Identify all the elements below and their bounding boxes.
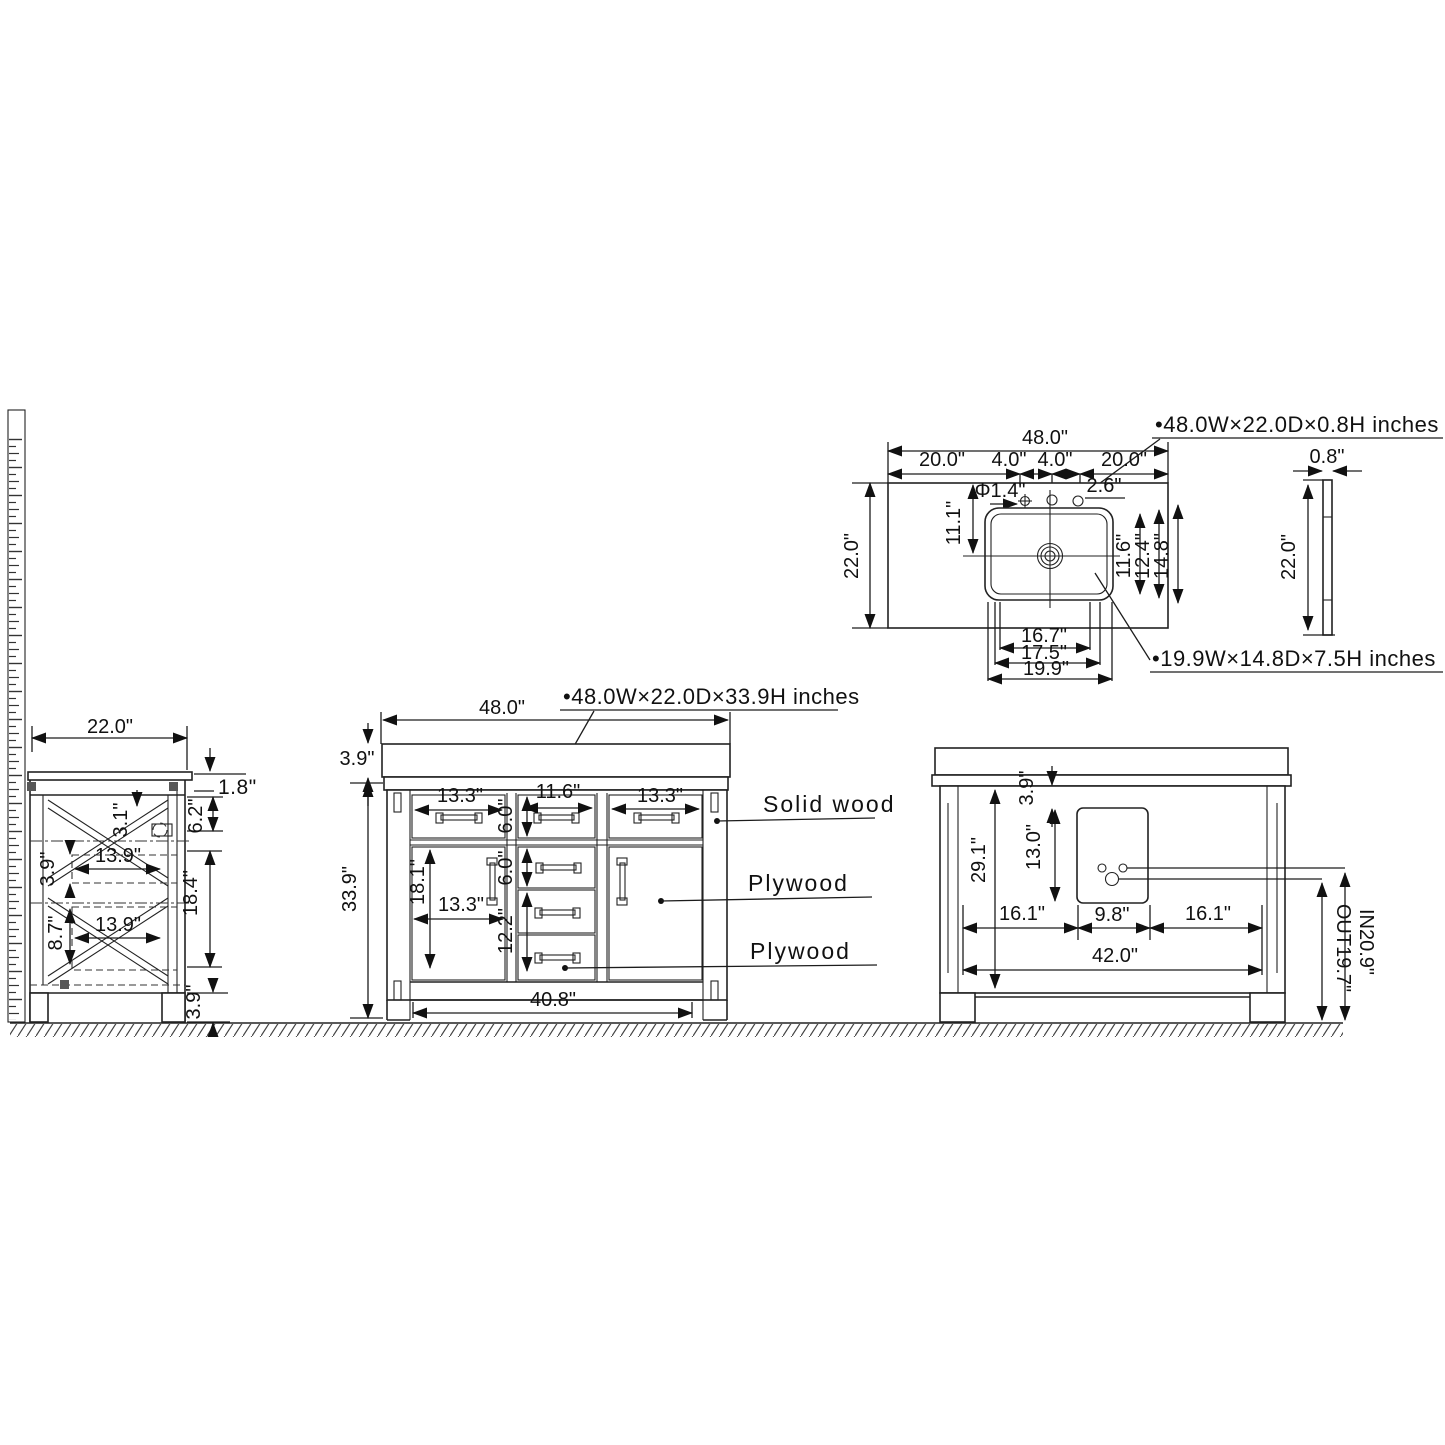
dim-top-seg-left: 20.0" xyxy=(919,449,965,471)
dim-drawer-depth: 6.0" xyxy=(495,799,517,834)
front-size-label: •48.0W×22.0D×33.9H inches xyxy=(563,684,860,709)
side-leg-front xyxy=(30,993,48,1022)
material-door-label: Plywood xyxy=(748,870,849,896)
dim-side-counter-thickness: 1.8" xyxy=(218,776,257,799)
dim-sink-d3: 14.8" xyxy=(1151,533,1173,579)
dim-hole-offset: 11.1" xyxy=(943,501,965,546)
dim-side-width: 22.0" xyxy=(87,716,133,738)
plumbing-cutout xyxy=(1077,808,1148,903)
dim-back-seg-right: 16.1" xyxy=(1185,903,1231,925)
dim-drawer-center: 11.6" xyxy=(536,781,581,803)
stack-drawer-3 xyxy=(518,935,595,980)
door-right xyxy=(609,847,702,980)
dim-side-box-h-top: 3.9" xyxy=(37,852,59,887)
back-view: 29.1" 3.9" 13.0" 16.1" 9.8" 16.1" 42.0" … xyxy=(932,748,1377,1022)
back-leg-right xyxy=(1250,993,1285,1022)
dim-side-opening: 18.4" xyxy=(180,870,202,916)
dim-base-w: 40.8" xyxy=(530,989,576,1011)
dim-stack-lower: 12.2" xyxy=(495,908,517,954)
dim-hole-spacing: 2.6" xyxy=(1087,475,1122,497)
dim-drawer-right: 13.3" xyxy=(637,785,683,807)
countertop-edge xyxy=(1323,480,1332,635)
measuring-ruler xyxy=(8,410,25,1022)
ground xyxy=(10,1023,1343,1037)
material-frame-label: Solid wood xyxy=(763,791,896,817)
back-countertop xyxy=(935,748,1288,775)
drawing-canvas: 22.0" 1.8" 3.1" 6.2" 3.9" 13.9" 18.4" 8.… xyxy=(0,0,1445,1445)
dim-side-box-w-bottom: 13.9" xyxy=(95,914,141,936)
dim-sink-w3: 19.9" xyxy=(1023,658,1069,680)
dim-front-height: 33.9" xyxy=(339,866,361,912)
x-brace-upper xyxy=(48,800,168,886)
vanity-dimension-drawing: 22.0" 1.8" 3.1" 6.2" 3.9" 13.9" 18.4" 8.… xyxy=(0,0,1445,1445)
side-view: 22.0" 1.8" 3.1" 6.2" 3.9" 13.9" 18.4" 8.… xyxy=(27,716,257,1034)
dim-top-seg-c1: 4.0" xyxy=(992,449,1027,471)
dim-front-width: 48.0" xyxy=(479,697,525,719)
dim-outlet-height: OUT19.7" xyxy=(1332,904,1354,992)
dim-back-seg-left: 16.1" xyxy=(999,903,1045,925)
dim-top-width: 48.0" xyxy=(1022,427,1068,449)
dim-door-w: 13.3" xyxy=(438,894,484,916)
dim-edge-thickness: 0.8" xyxy=(1310,446,1345,468)
side-leg-back xyxy=(162,993,185,1022)
sink-size-label: •19.9W×14.8D×7.5H inches xyxy=(1152,646,1436,671)
dim-top-depth: 22.0" xyxy=(841,533,863,579)
stack-drawer-1 xyxy=(518,847,595,888)
back-leg-left xyxy=(940,993,975,1022)
dim-side-leg-h: 3.9" xyxy=(183,985,205,1020)
countertop-top-view: •48.0W×22.0D×0.8H inches 48.0" 20.0" 4.0… xyxy=(841,412,1443,681)
dim-back-width: 42.0" xyxy=(1092,945,1138,967)
dim-edge-depth: 22.0" xyxy=(1278,534,1300,580)
dim-cutout-offset: 3.9" xyxy=(1016,771,1038,806)
dim-side-box-w-top: 13.9" xyxy=(95,845,141,867)
dim-top-seg-c2: 4.0" xyxy=(1038,449,1073,471)
countertop-size-label: •48.0W×22.0D×0.8H inches xyxy=(1155,412,1439,437)
countertop-edge-view: 0.8" 22.0" xyxy=(1278,446,1362,635)
front-view: •48.0W×22.0D×33.9H inches 48.0" 3.9" xyxy=(339,684,896,1020)
dim-back-opening-h: 29.1" xyxy=(968,837,990,883)
dim-top-seg-right: 20.0" xyxy=(1101,449,1147,471)
dim-side-gap: 6.2" xyxy=(185,799,207,834)
dim-cutout-w: 9.8" xyxy=(1095,904,1130,926)
dim-door-h: 18.1" xyxy=(407,859,429,905)
dim-drawer-left: 13.3" xyxy=(437,785,483,807)
material-drawer-label: Plywood xyxy=(750,938,851,964)
dim-hole-dia: Φ1.4" xyxy=(975,480,1026,502)
sink-outline xyxy=(985,508,1113,600)
stack-drawer-2 xyxy=(518,890,595,933)
dim-stack-mid: 6.0" xyxy=(495,851,517,886)
back-countertop-lip xyxy=(932,775,1291,786)
dim-inlet-height: IN20.9" xyxy=(1355,909,1377,975)
dim-cutout-h: 13.0" xyxy=(1023,824,1045,870)
dim-side-box-h-bottom: 8.7" xyxy=(45,916,67,951)
dim-side-rail: 3.1" xyxy=(110,803,132,838)
side-countertop xyxy=(28,772,192,780)
front-countertop xyxy=(382,744,730,777)
dim-front-counter-h: 3.9" xyxy=(340,748,375,770)
